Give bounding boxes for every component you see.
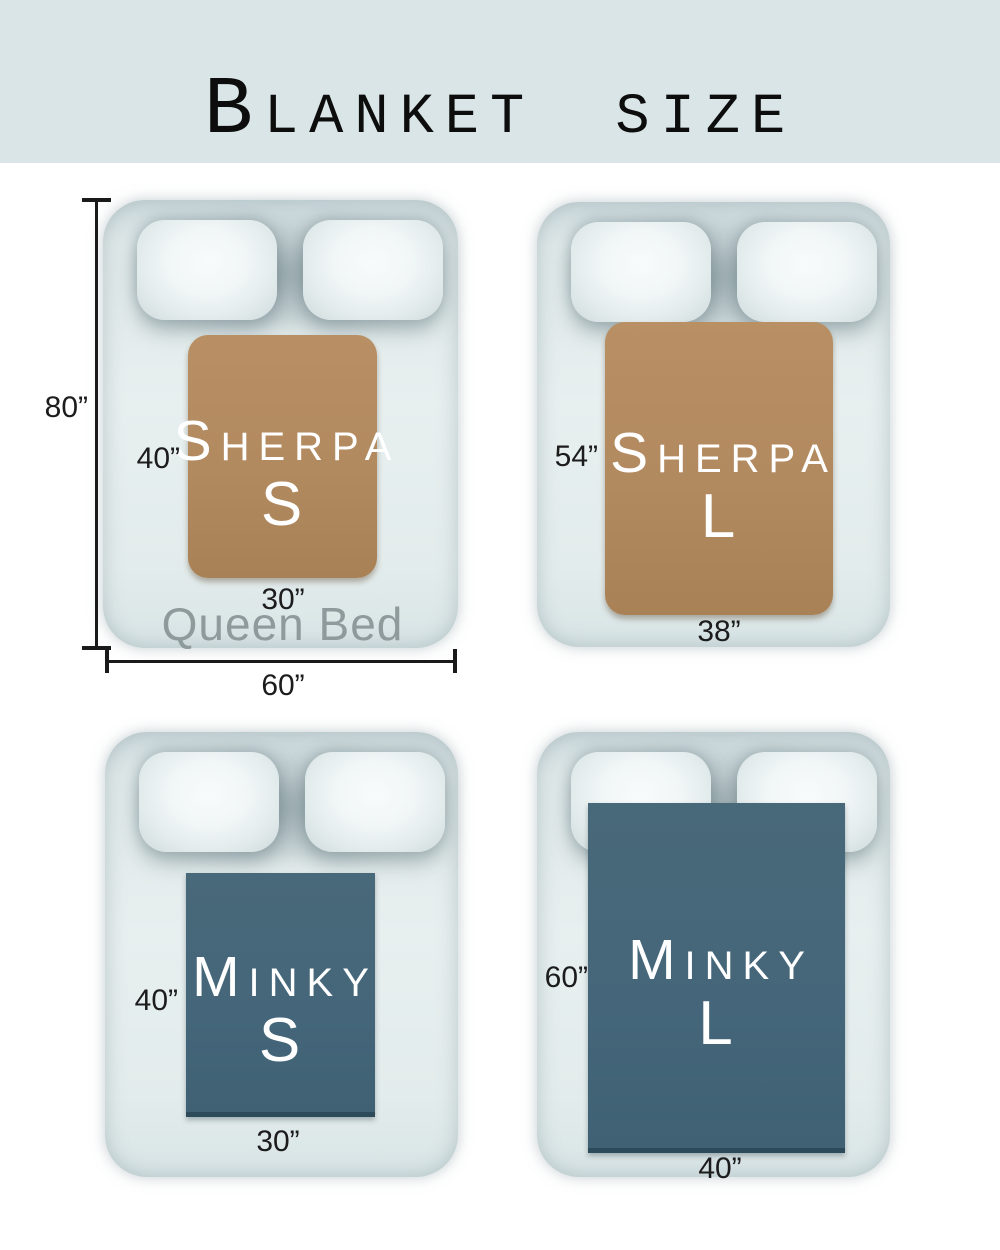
blanket-name-label: Minky (183, 948, 378, 1008)
blanket-height-label: 54” (536, 442, 598, 472)
pillow-icon (571, 222, 711, 322)
bed-minky-l: Minky L (537, 732, 890, 1177)
blanket-minky-l: Minky L (588, 803, 845, 1153)
dimension-tick (105, 649, 109, 673)
blanket-sherpa-s: Sherpa S (188, 335, 377, 578)
blanket-width-label: 40” (640, 1154, 800, 1184)
bed-sherpa-s: Sherpa S (103, 200, 458, 648)
blanket-size-label: S (183, 1008, 378, 1073)
blanket-size-label: L (601, 484, 837, 549)
blanket-name-label: Sherpa (601, 424, 837, 484)
blanket-width-label: 38” (639, 617, 799, 647)
blanket-height-label: 40” (118, 444, 180, 474)
bed-name-label: Queen Bed (105, 601, 460, 647)
dimension-tick (82, 198, 111, 202)
blanket-height-label: 40” (116, 986, 178, 1016)
page-title: Blanket size (0, 70, 1000, 152)
pillow-icon (303, 220, 443, 320)
blanket-height-label: 60” (526, 963, 588, 993)
blanket-width-label: 30” (198, 1127, 358, 1157)
pillow-icon (137, 220, 277, 320)
blanket-sherpa-l: Sherpa L (605, 322, 833, 615)
bed-height-dimension-line (95, 200, 98, 649)
blanket-name-label: Minky (619, 931, 814, 991)
bed-width-label: 60” (183, 671, 383, 701)
bed-height-label: 80” (30, 393, 88, 423)
blanket-name-label: Sherpa (165, 412, 401, 472)
blanket-size-label: L (619, 991, 814, 1056)
blanket-minky-s: Minky S (186, 873, 375, 1117)
blanket-size-label: S (165, 472, 401, 537)
bed-width-dimension-line (107, 660, 457, 663)
pillow-icon (139, 752, 279, 852)
pillow-icon (305, 752, 445, 852)
bed-minky-s: Minky S (105, 732, 458, 1177)
bed-sherpa-l: Sherpa L (537, 202, 890, 647)
dimension-tick (453, 649, 457, 673)
pillow-icon (737, 222, 877, 322)
